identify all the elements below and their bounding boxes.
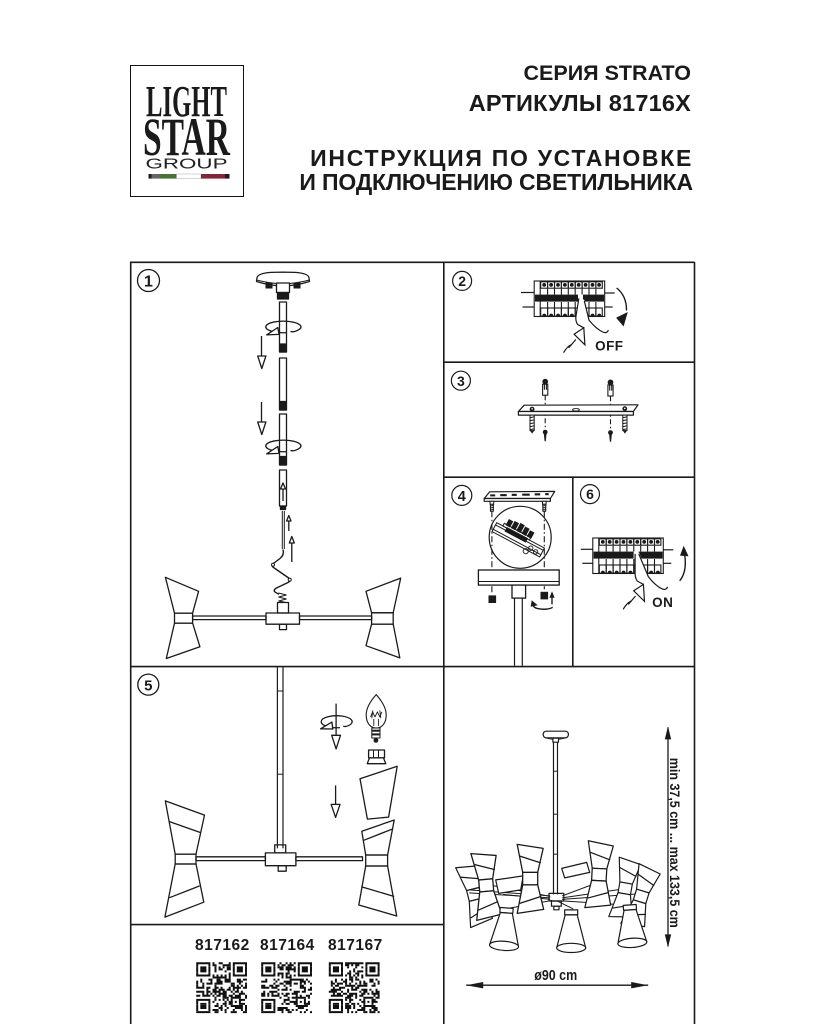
svg-text:6: 6 xyxy=(586,486,594,502)
svg-text:4: 4 xyxy=(458,489,466,505)
svg-text:1: 1 xyxy=(144,274,153,291)
svg-text:min 37,5 cm ... max 133,5 cm: min 37,5 cm ... max 133,5 cm xyxy=(667,757,683,927)
svg-text:ø90 cm: ø90 cm xyxy=(534,967,577,984)
svg-text:OFF: OFF xyxy=(595,338,623,353)
svg-text:3: 3 xyxy=(457,373,465,389)
svg-text:ON: ON xyxy=(652,595,673,610)
svg-text:2: 2 xyxy=(458,273,466,289)
svg-text:5: 5 xyxy=(144,677,152,694)
